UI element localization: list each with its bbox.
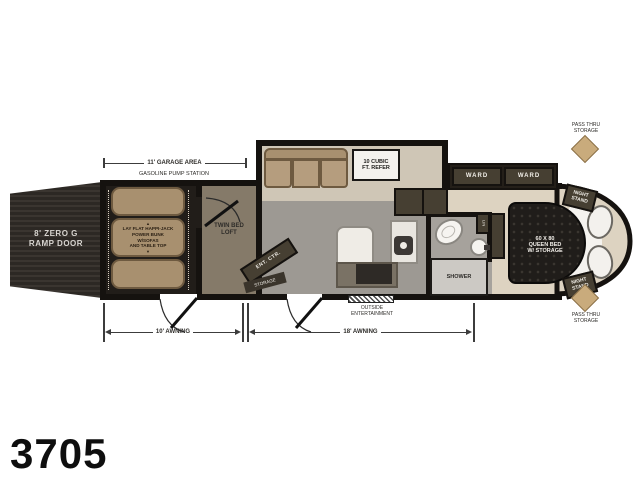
main-entry-door bbox=[287, 298, 322, 332]
floorplan-page: { "model": "3705", "colors": { "wall": "… bbox=[0, 0, 640, 480]
door-swings bbox=[0, 0, 640, 480]
loft-door bbox=[205, 198, 240, 226]
model-number: 3705 bbox=[10, 430, 107, 478]
garage-entry-door bbox=[160, 298, 197, 332]
